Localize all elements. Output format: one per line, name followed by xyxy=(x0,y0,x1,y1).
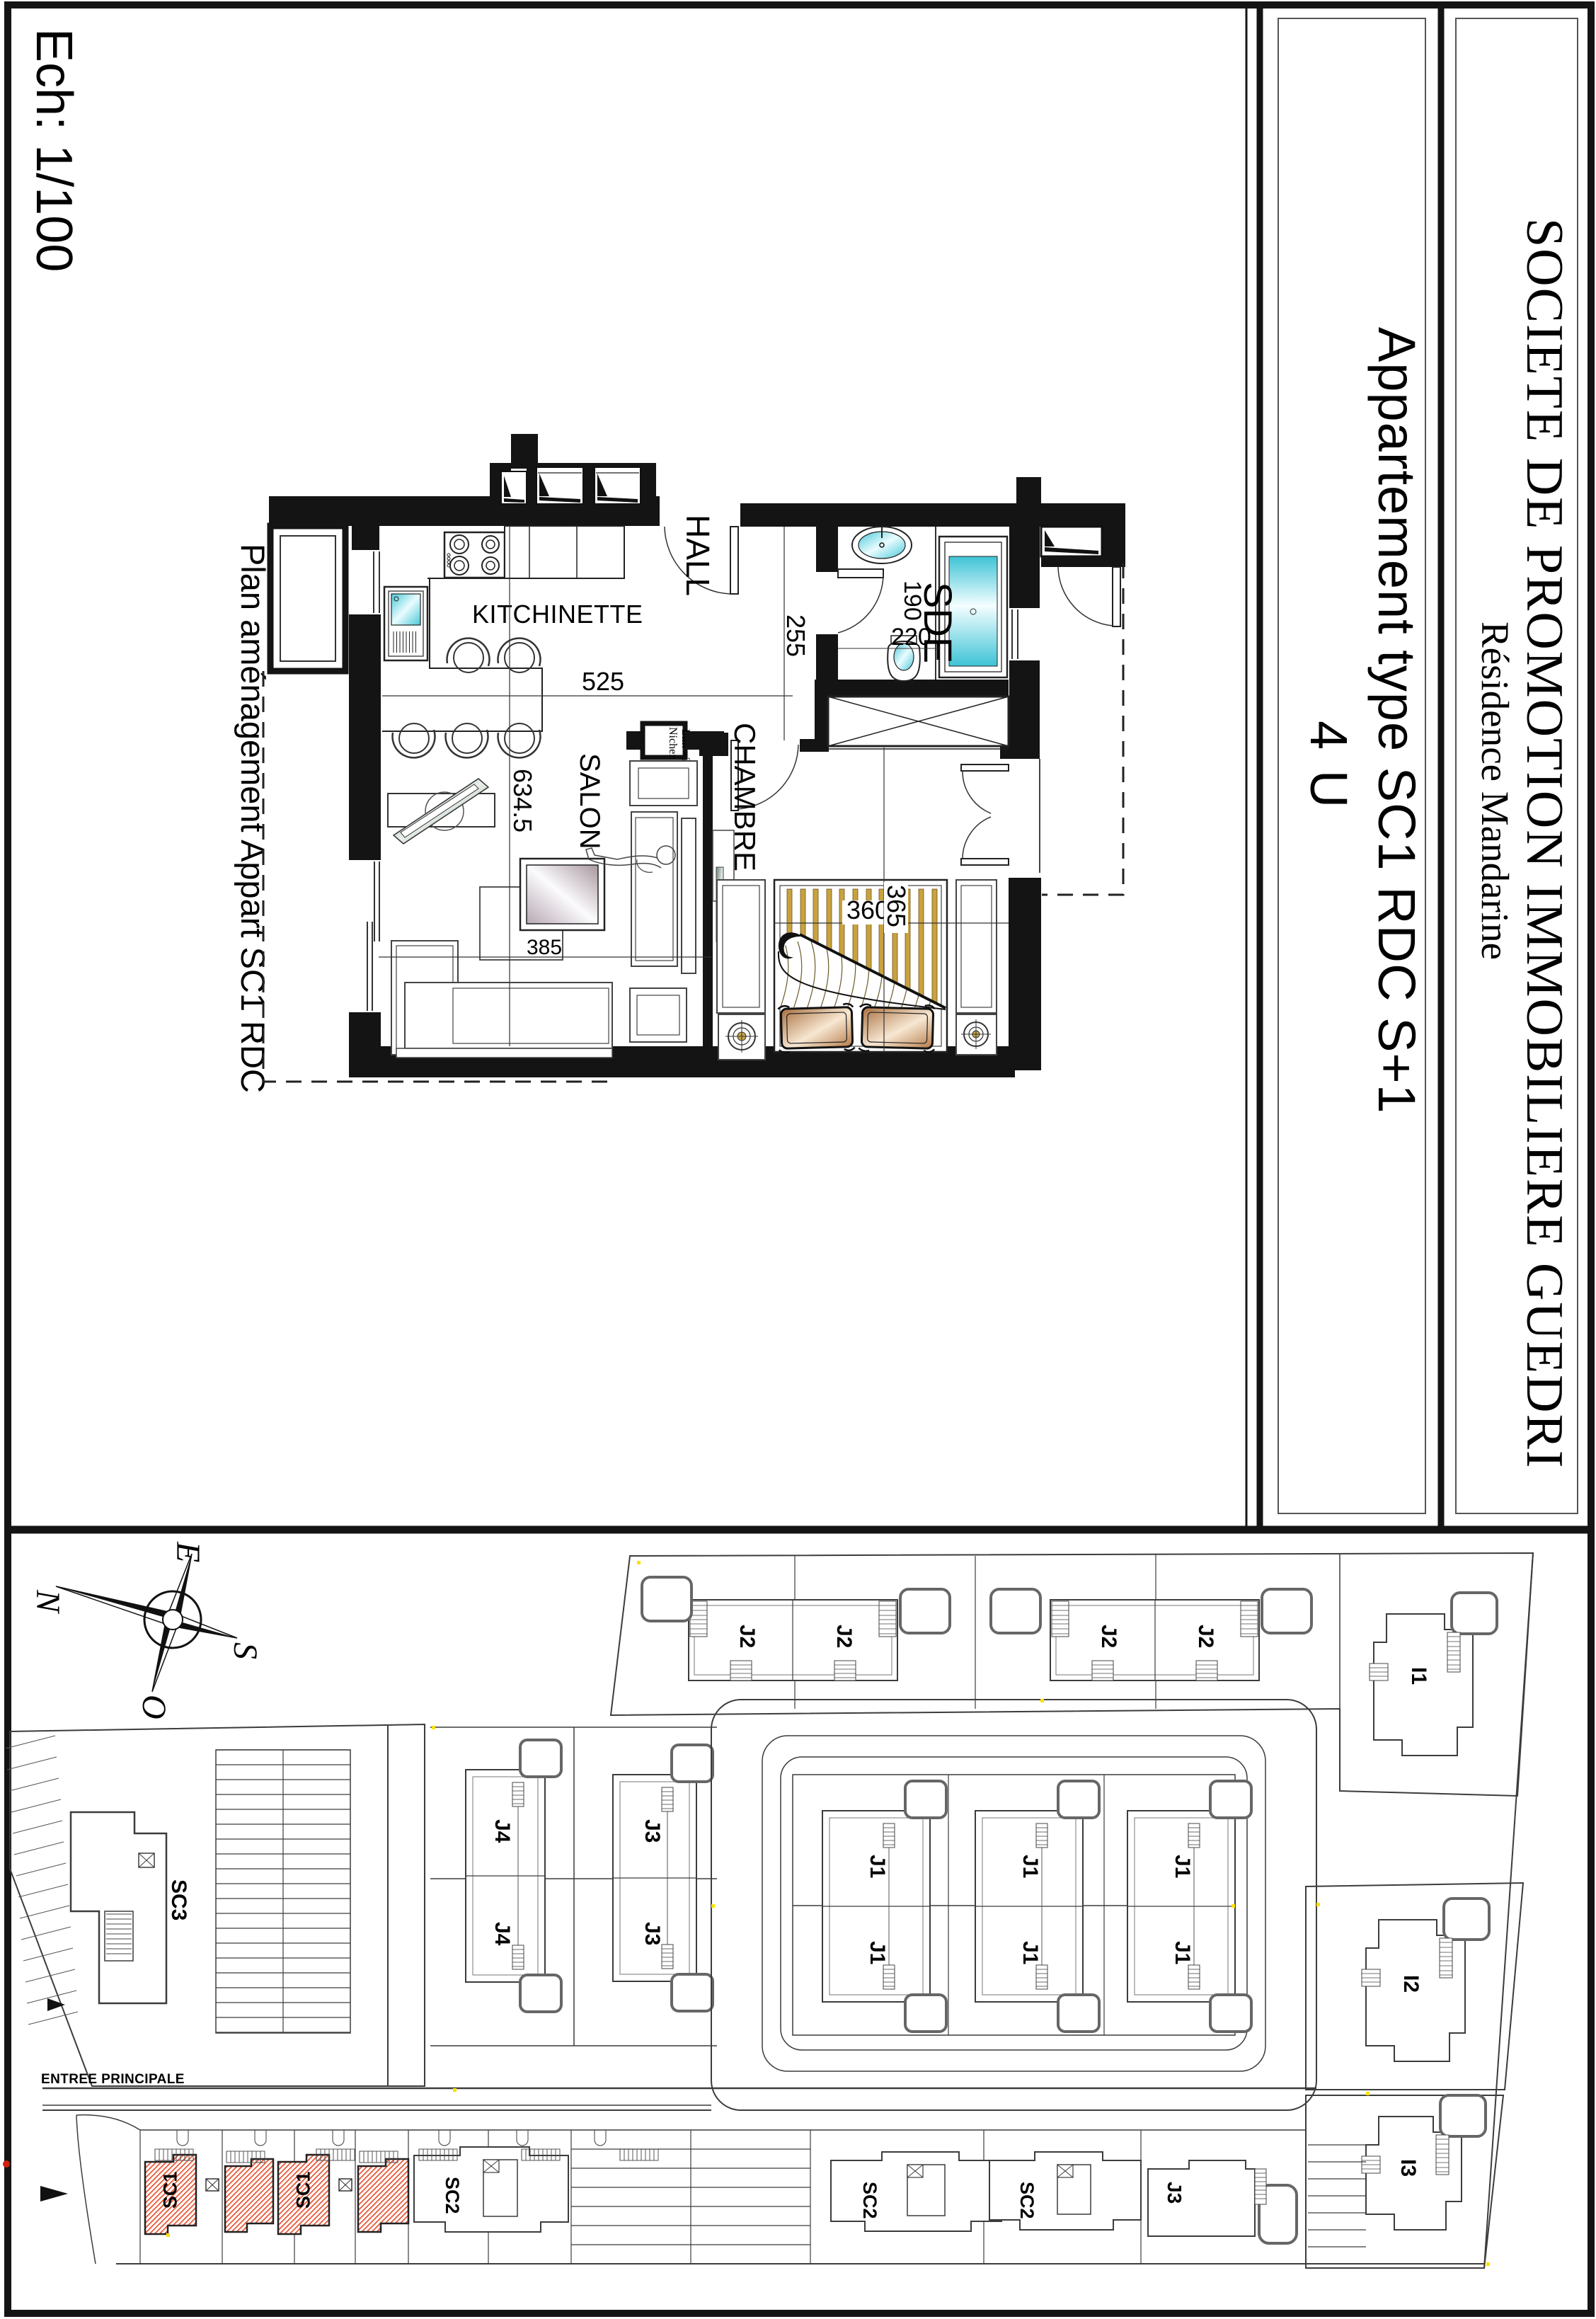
svg-text:CHAMBRE: CHAMBRE xyxy=(728,723,762,871)
svg-text:SC3: SC3 xyxy=(167,1879,190,1920)
svg-text:J1: J1 xyxy=(1018,1855,1042,1878)
svg-text:J2: J2 xyxy=(1194,1625,1217,1648)
svg-text:J1: J1 xyxy=(1171,1855,1194,1878)
svg-text:SC2: SC2 xyxy=(1016,2182,1038,2219)
svg-text:4 U: 4 U xyxy=(1299,721,1358,811)
svg-text:KITCHINETTE: KITCHINETTE xyxy=(472,600,643,629)
svg-text:SC1: SC1 xyxy=(293,2172,314,2209)
svg-text:Résidence Mandarine: Résidence Mandarine xyxy=(1474,622,1517,960)
svg-text:I3: I3 xyxy=(1396,2159,1420,2177)
svg-text:SC2: SC2 xyxy=(442,2177,463,2214)
svg-text:O: O xyxy=(135,1695,173,1719)
svg-text:J2: J2 xyxy=(832,1625,856,1648)
svg-text:J1: J1 xyxy=(1018,1941,1042,1964)
svg-text:S: S xyxy=(226,1642,264,1659)
svg-text:I1: I1 xyxy=(1407,1667,1430,1685)
svg-text:J4: J4 xyxy=(490,1922,514,1946)
svg-text:J4: J4 xyxy=(490,1819,514,1843)
svg-text:634.5: 634.5 xyxy=(508,769,537,832)
svg-text:E: E xyxy=(169,1541,207,1562)
svg-text:J1: J1 xyxy=(1171,1941,1194,1964)
svg-text:J2: J2 xyxy=(1097,1625,1120,1648)
svg-text:ENTREE PRINCIPALE: ENTREE PRINCIPALE xyxy=(41,2072,185,2087)
svg-text:385: 385 xyxy=(527,936,562,959)
svg-text:J3: J3 xyxy=(641,1922,664,1945)
svg-text:Ech: 1/100: Ech: 1/100 xyxy=(25,28,82,272)
svg-text:190: 190 xyxy=(899,580,926,621)
svg-text:SC2: SC2 xyxy=(859,2182,880,2219)
svg-text:J2: J2 xyxy=(735,1625,759,1648)
svg-text:J1: J1 xyxy=(866,1855,889,1878)
svg-text:Appartement type SC1 RDC S+1: Appartement type SC1 RDC S+1 xyxy=(1367,327,1426,1114)
svg-text:525: 525 xyxy=(582,667,624,696)
svg-text:365: 365 xyxy=(882,885,911,927)
svg-text:HALL: HALL xyxy=(679,515,716,596)
svg-text:J3: J3 xyxy=(1164,2182,1185,2204)
svg-text:I2: I2 xyxy=(1399,1975,1423,1993)
svg-text:220: 220 xyxy=(891,624,931,651)
svg-text:SOCIETE DE PROMOTION IMMOBILIE: SOCIETE DE PROMOTION IMMOBILIERE GUEDRI xyxy=(1515,218,1573,1470)
svg-text:SALON: SALON xyxy=(574,753,605,849)
svg-text:J3: J3 xyxy=(641,1819,664,1843)
svg-text:SC1: SC1 xyxy=(160,2172,181,2209)
svg-text:N: N xyxy=(29,1589,67,1615)
svg-text:255: 255 xyxy=(781,614,810,657)
svg-text:Plan aménagement Appart SC1 RD: Plan aménagement Appart SC1 RDC xyxy=(234,544,272,1093)
svg-text:J1: J1 xyxy=(866,1941,889,1964)
